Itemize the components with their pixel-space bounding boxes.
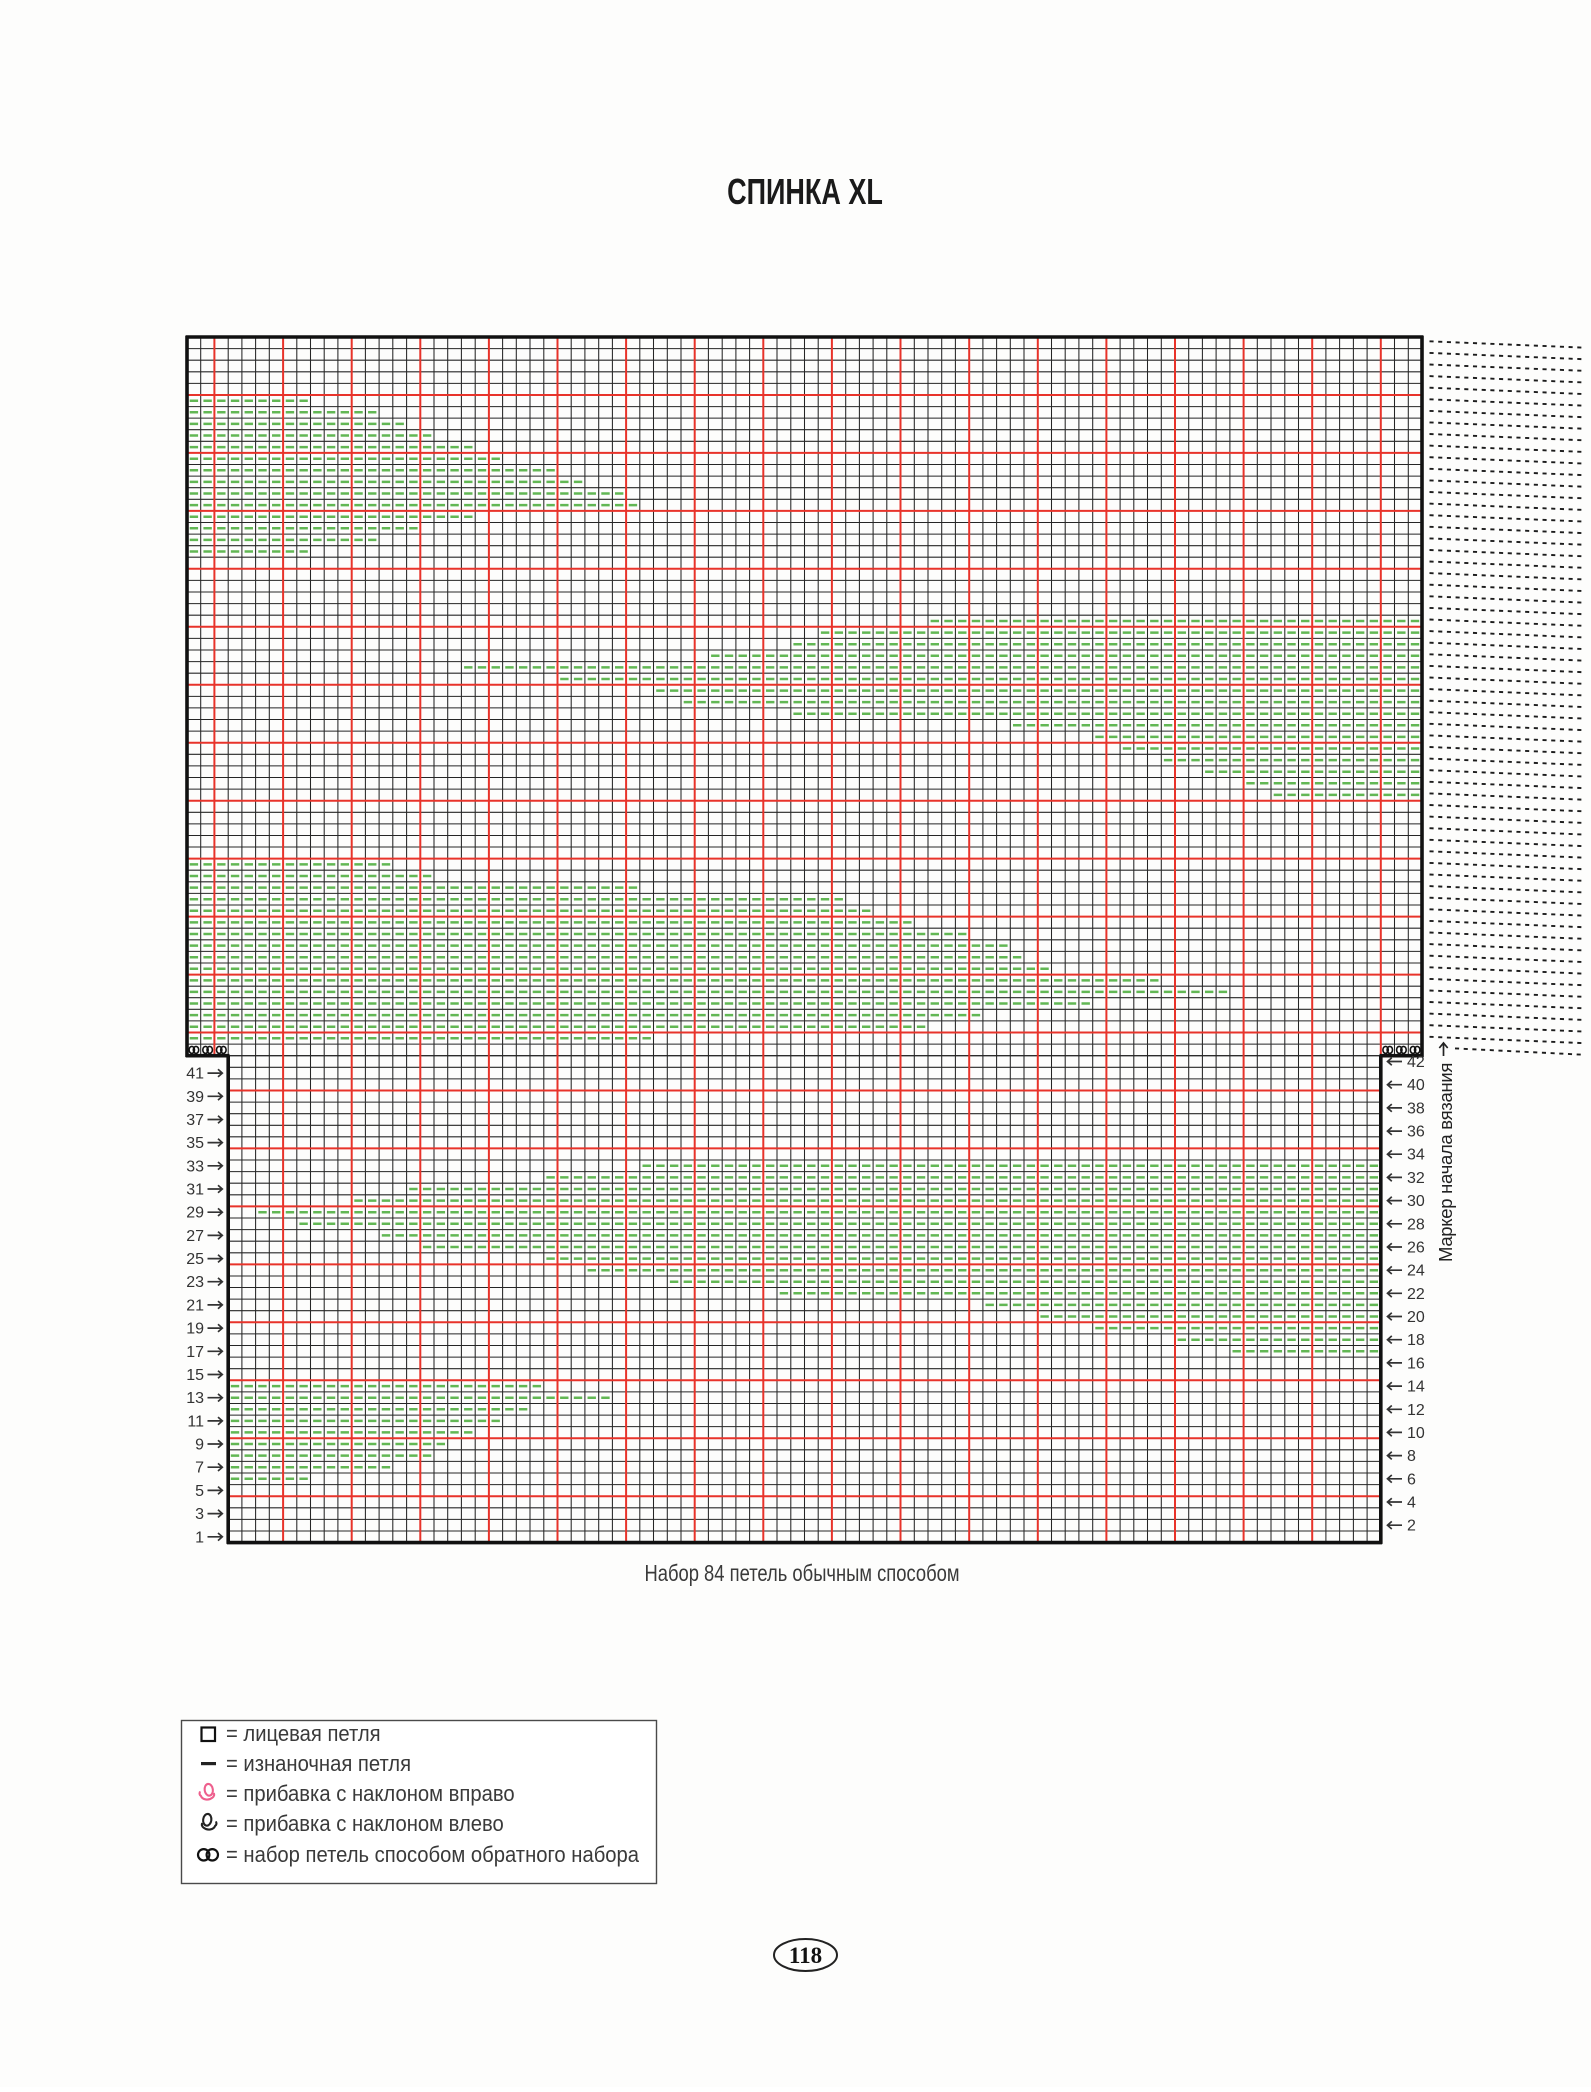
svg-text:28: 28 [1407, 1216, 1425, 1233]
svg-text:37: 37 [186, 1112, 204, 1129]
svg-text:38: 38 [1407, 1100, 1425, 1117]
svg-text:17: 17 [186, 1344, 204, 1361]
svg-text:16: 16 [1407, 1355, 1425, 1372]
svg-text:= прибавка с наклоном влево: = прибавка с наклоном влево [226, 1812, 504, 1836]
svg-text:10: 10 [1407, 1425, 1425, 1442]
svg-text:26: 26 [1407, 1240, 1425, 1257]
svg-text:27: 27 [186, 1228, 204, 1245]
svg-text:21: 21 [186, 1297, 204, 1314]
svg-text:5: 5 [195, 1483, 204, 1500]
svg-text:22: 22 [1407, 1286, 1425, 1303]
svg-text:= набор петель способом обратн: = набор петель способом обратного набора [226, 1843, 639, 1867]
svg-text:23: 23 [186, 1274, 204, 1291]
svg-text:= прибавка с наклоном вправо: = прибавка с наклоном вправо [226, 1782, 515, 1806]
svg-text:8: 8 [1407, 1448, 1416, 1465]
svg-text:2: 2 [1407, 1518, 1416, 1535]
svg-text:18: 18 [1407, 1332, 1425, 1349]
svg-text:= изнаночная петля: = изнаночная петля [226, 1752, 411, 1776]
svg-text:6: 6 [1407, 1471, 1416, 1488]
svg-text:12: 12 [1407, 1402, 1425, 1419]
svg-text:24: 24 [1407, 1263, 1425, 1280]
svg-text:33: 33 [186, 1158, 204, 1175]
svg-text:34: 34 [1407, 1147, 1425, 1164]
svg-text:СПИНКА XL: СПИНКА XL [727, 171, 883, 212]
svg-text:7: 7 [195, 1460, 204, 1477]
svg-text:4: 4 [1407, 1495, 1416, 1512]
svg-text:1: 1 [195, 1529, 204, 1546]
svg-text:14: 14 [1407, 1379, 1425, 1396]
svg-text:36: 36 [1407, 1124, 1425, 1141]
svg-text:19: 19 [186, 1321, 204, 1338]
svg-text:31: 31 [186, 1182, 204, 1199]
svg-text:40: 40 [1407, 1077, 1425, 1094]
svg-text:118: 118 [789, 1943, 822, 1968]
svg-text:20: 20 [1407, 1309, 1425, 1326]
svg-text:35: 35 [186, 1135, 204, 1152]
svg-text:Набор 84 петель обычным способ: Набор 84 петель обычным способом [644, 1561, 959, 1586]
svg-text:25: 25 [186, 1251, 204, 1268]
svg-text:Маркер начала вязания: Маркер начала вязания [1435, 1063, 1456, 1262]
svg-text:15: 15 [186, 1367, 204, 1384]
svg-text:13: 13 [186, 1390, 204, 1407]
svg-text:11: 11 [187, 1413, 204, 1430]
svg-text:= лицевая петля: = лицевая петля [226, 1722, 381, 1746]
svg-text:32: 32 [1407, 1170, 1425, 1187]
svg-text:30: 30 [1407, 1193, 1425, 1210]
svg-text:41: 41 [186, 1066, 204, 1083]
svg-text:42: 42 [1407, 1054, 1425, 1071]
svg-text:39: 39 [186, 1089, 204, 1106]
svg-text:29: 29 [186, 1205, 204, 1222]
svg-text:3: 3 [195, 1506, 204, 1523]
svg-text:9: 9 [195, 1437, 204, 1454]
